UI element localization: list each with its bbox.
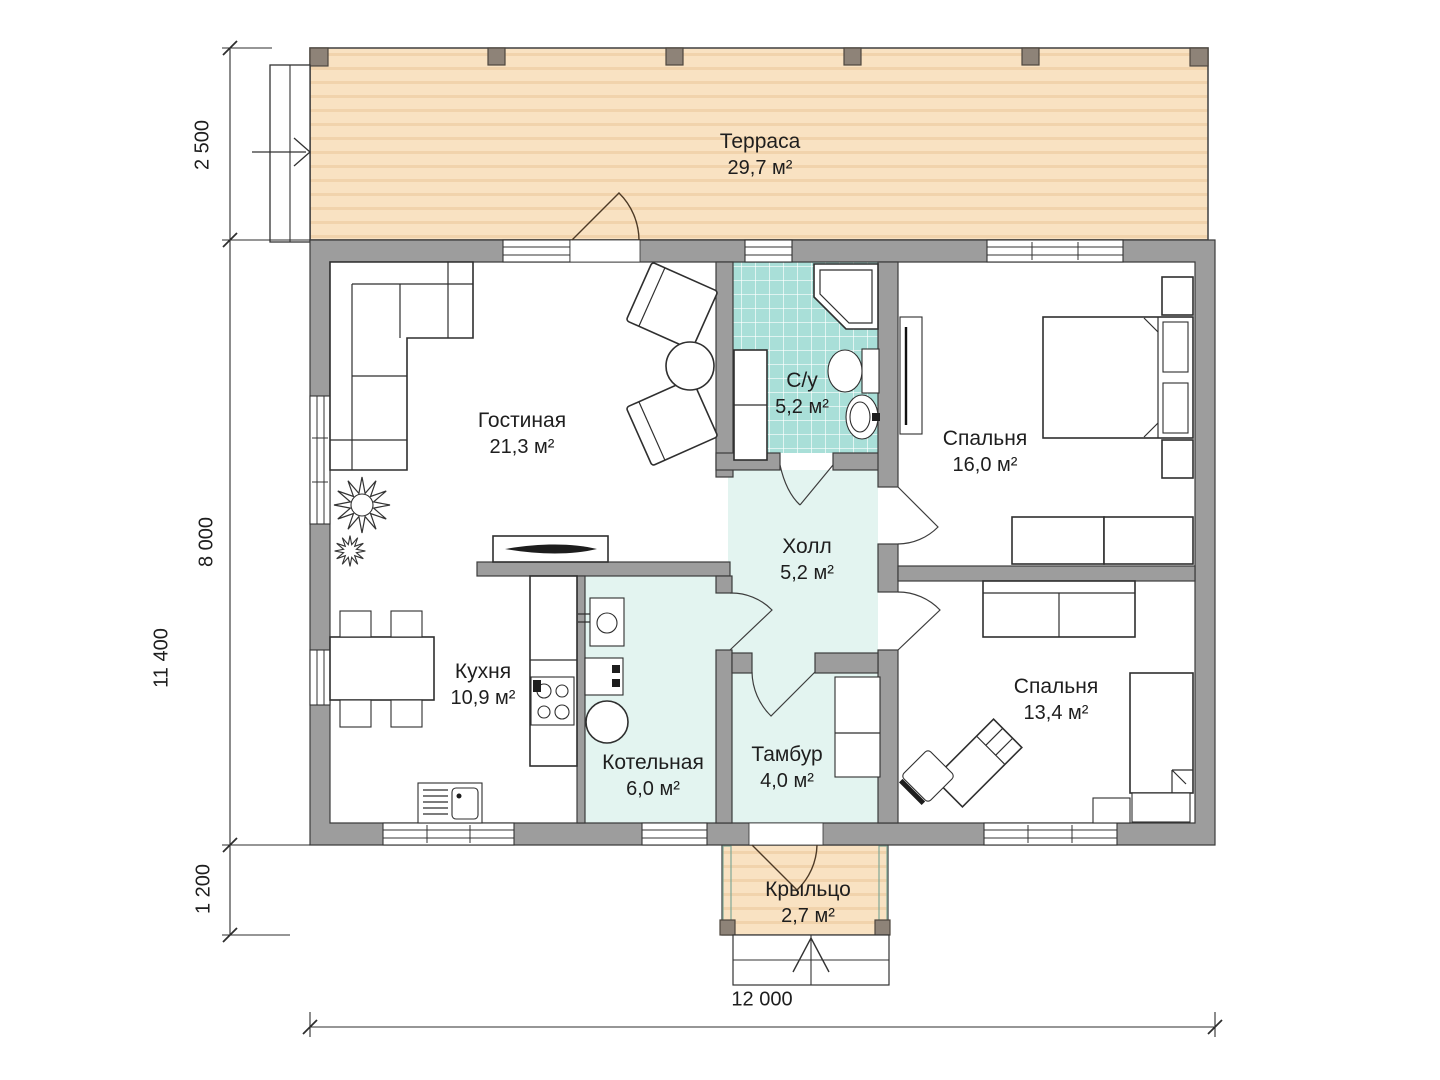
room-label-bedroom-main: Спальня 16,0 м²	[943, 426, 1027, 478]
room-label-porch: Крыльцо 2,7 м²	[765, 877, 851, 929]
room-name: Спальня	[943, 426, 1027, 452]
room-label-boiler: Котельная 6,0 м²	[602, 750, 704, 802]
dim-terrace-depth: 2 500	[192, 120, 215, 170]
tv-stand-icon	[493, 536, 608, 562]
room-label-terrace: Терраса 29,7 м²	[720, 129, 801, 181]
room-label-living: Гостиная 21,3 м²	[478, 408, 566, 460]
bathroom-window	[745, 240, 792, 262]
nightstand-icon	[1162, 440, 1193, 478]
room-name: Кухня	[451, 659, 516, 685]
kitchen-sink-icon	[418, 783, 482, 823]
living-window-top	[503, 240, 570, 262]
room-name: Спальня	[1014, 674, 1098, 700]
floor-plan-page: Терраса 29,7 м² Гостиная 21,3 м² С/у 5,2…	[0, 0, 1440, 1080]
living-window-left	[310, 396, 330, 524]
wardrobe-icon	[983, 581, 1135, 637]
bathroom-cabinet-icon	[734, 350, 767, 460]
entry-door-opening	[749, 823, 823, 845]
dim-total-width: 12 000	[731, 989, 792, 1012]
room-label-bathroom: С/у 5,2 м²	[775, 368, 829, 420]
nightstand-icon	[1093, 798, 1130, 823]
room-area: 4,0 м²	[751, 768, 822, 794]
dresser-icon	[1012, 517, 1193, 564]
room-area: 16,0 м²	[943, 452, 1027, 478]
washing-machine-icon	[585, 658, 623, 695]
room-label-hall: Холл 5,2 м²	[780, 534, 834, 586]
room-name: Холл	[780, 534, 834, 560]
porch-steps-icon	[733, 935, 889, 985]
room-area: 10,9 м²	[451, 685, 516, 711]
terrace-door-opening	[570, 240, 640, 262]
room-area: 21,3 м²	[478, 434, 566, 460]
room-area: 29,7 м²	[720, 155, 801, 181]
single-bed-icon	[1130, 673, 1193, 822]
kitchen-window-bottom	[383, 823, 514, 845]
bedroom-main-window	[987, 240, 1123, 262]
room-area: 2,7 м²	[765, 903, 851, 929]
boiler-tank-icon	[586, 701, 628, 743]
room-name: С/у	[775, 368, 829, 394]
room-name: Тамбур	[751, 742, 822, 768]
dim-house-depth: 8 000	[196, 517, 219, 567]
bedroom-second-window	[984, 823, 1117, 845]
room-label-vestibule: Тамбур 4,0 м²	[751, 742, 822, 794]
kitchen-counter-icon	[530, 576, 577, 766]
nightstand-icon	[1162, 277, 1193, 315]
room-area: 5,2 м²	[775, 394, 829, 420]
room-label-kitchen: Кухня 10,9 м²	[451, 659, 516, 711]
mirror-wardrobe-icon	[900, 317, 922, 434]
room-name: Котельная	[602, 750, 704, 776]
toilet-icon	[828, 349, 879, 393]
double-bed-icon	[1043, 317, 1193, 438]
room-label-bedroom-second: Спальня 13,4 м²	[1014, 674, 1098, 726]
vestibule-cabinet-icon	[835, 677, 880, 777]
kitchen-window-left	[310, 650, 330, 705]
room-area: 13,4 м²	[1014, 700, 1098, 726]
terrace-stairs-icon	[252, 65, 310, 242]
room-name: Крыльцо	[765, 877, 851, 903]
room-name: Терраса	[720, 129, 801, 155]
stove-icon	[531, 677, 574, 725]
dim-porch-depth: 1 200	[193, 864, 216, 914]
boiler-window	[642, 823, 707, 845]
room-area: 5,2 м²	[780, 560, 834, 586]
side-table-icon	[666, 342, 714, 390]
dim-total-height: 11 400	[151, 628, 174, 688]
room-area: 6,0 м²	[602, 776, 704, 802]
room-name: Гостиная	[478, 408, 566, 434]
